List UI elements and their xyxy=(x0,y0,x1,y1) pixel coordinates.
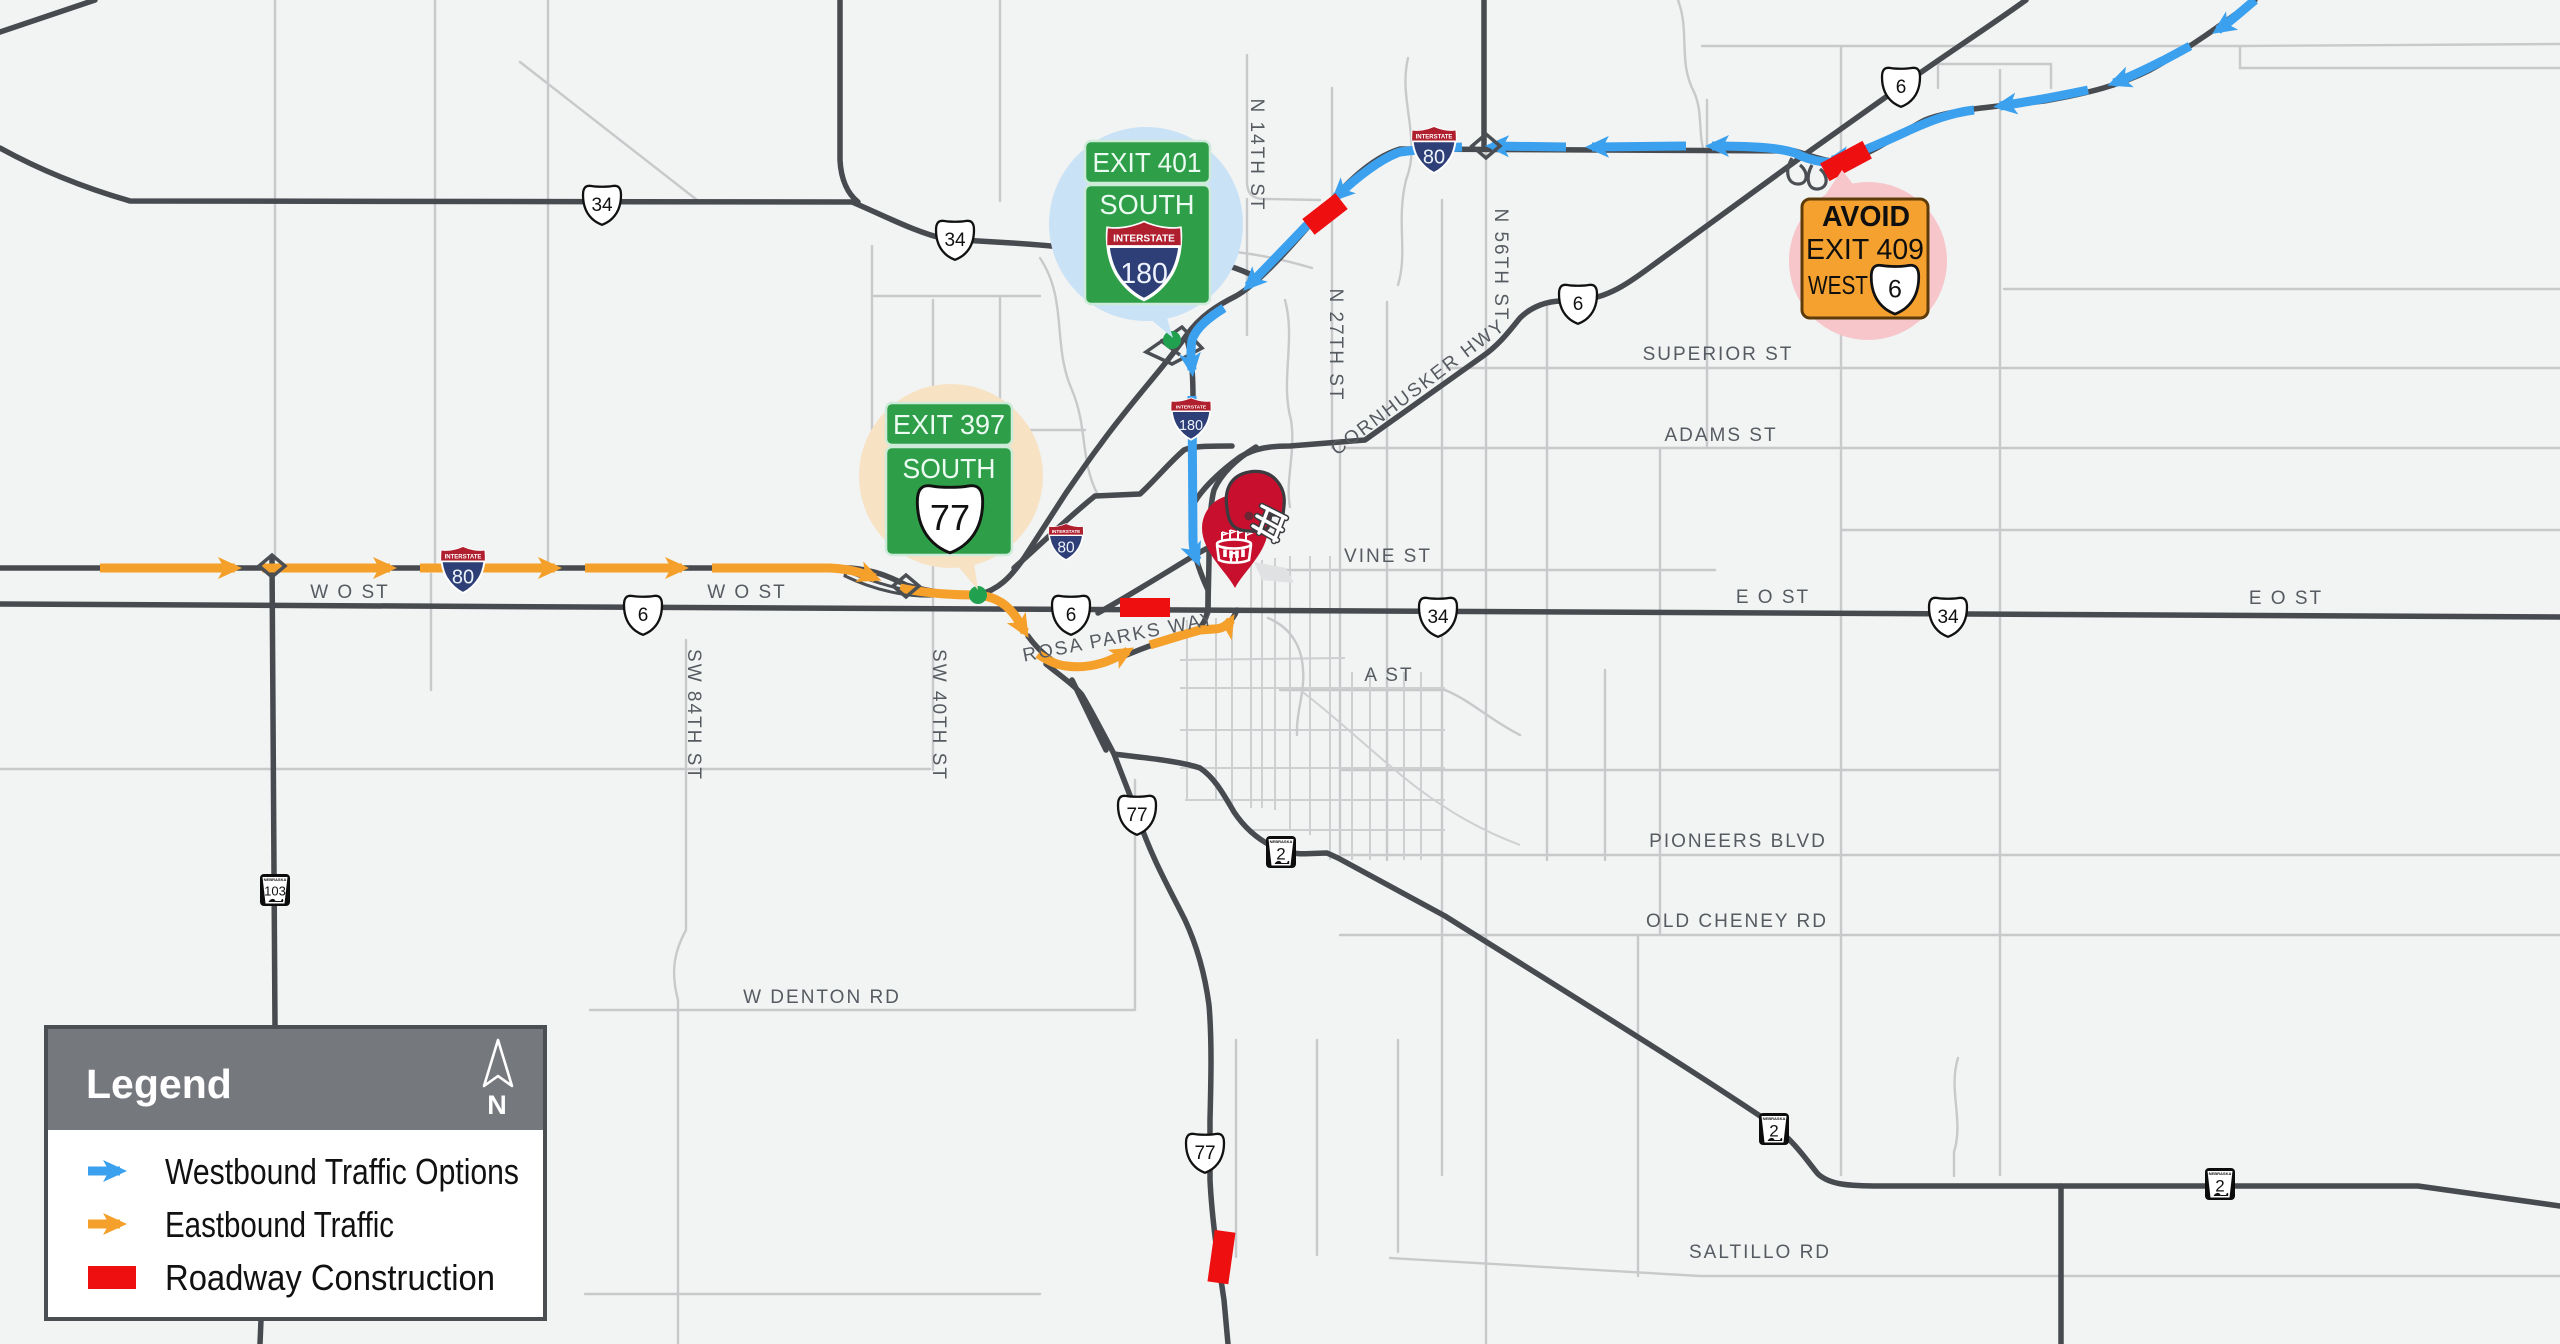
svg-text:SOUTH: SOUTH xyxy=(1100,189,1195,220)
svg-text:77: 77 xyxy=(1126,805,1147,826)
svg-text:SUPERIOR ST: SUPERIOR ST xyxy=(1643,344,1794,365)
svg-text:W O ST: W O ST xyxy=(310,582,390,603)
svg-text:VINE ST: VINE ST xyxy=(1344,546,1432,567)
svg-text:Westbound Traffic Options: Westbound Traffic Options xyxy=(165,1151,519,1192)
svg-text:INTERSTATE: INTERSTATE xyxy=(1176,405,1207,411)
svg-text:180: 180 xyxy=(1179,418,1203,434)
svg-text:6: 6 xyxy=(638,605,649,626)
svg-text:AVOID: AVOID xyxy=(1822,201,1910,233)
svg-text:E O ST: E O ST xyxy=(1736,587,1810,608)
svg-text:34: 34 xyxy=(944,230,966,251)
svg-text:80: 80 xyxy=(452,567,474,589)
svg-text:2: 2 xyxy=(1276,845,1285,864)
svg-text:Eastbound Traffic: Eastbound Traffic xyxy=(165,1204,394,1245)
svg-text:34: 34 xyxy=(1937,607,1959,628)
svg-text:NEBRASKA: NEBRASKA xyxy=(264,877,287,882)
svg-text:6: 6 xyxy=(1888,275,1902,303)
svg-text:EXIT 401: EXIT 401 xyxy=(1093,147,1202,178)
svg-text:N 56TH ST: N 56TH ST xyxy=(1490,208,1511,321)
svg-text:NEBRASKA: NEBRASKA xyxy=(1763,1116,1786,1121)
svg-text:80: 80 xyxy=(1423,147,1445,169)
svg-text:INTERSTATE: INTERSTATE xyxy=(1052,529,1081,534)
svg-text:103: 103 xyxy=(264,884,286,899)
svg-text:WEST: WEST xyxy=(1808,270,1868,300)
svg-text:Roadway Construction: Roadway Construction xyxy=(165,1257,495,1298)
svg-text:EXIT 397: EXIT 397 xyxy=(893,409,1005,440)
svg-text:Legend: Legend xyxy=(86,1061,232,1107)
svg-text:SALTILLO RD: SALTILLO RD xyxy=(1689,1242,1831,1263)
svg-text:OLD CHENEY RD: OLD CHENEY RD xyxy=(1646,911,1828,932)
svg-text:180: 180 xyxy=(1120,258,1168,290)
svg-text:N 14TH ST: N 14TH ST xyxy=(1246,98,1267,211)
svg-text:SOUTH: SOUTH xyxy=(903,453,996,484)
svg-text:INTERSTATE: INTERSTATE xyxy=(1113,234,1175,245)
svg-text:80: 80 xyxy=(1057,540,1075,557)
svg-text:2: 2 xyxy=(1769,1122,1778,1141)
svg-text:SW 40TH ST: SW 40TH ST xyxy=(928,649,949,781)
svg-text:N 27TH ST: N 27TH ST xyxy=(1325,288,1346,401)
svg-text:W DENTON RD: W DENTON RD xyxy=(743,987,901,1008)
svg-text:PIONEERS BLVD: PIONEERS BLVD xyxy=(1649,831,1827,852)
svg-text:77: 77 xyxy=(1194,1143,1215,1164)
svg-text:ADAMS ST: ADAMS ST xyxy=(1664,425,1777,446)
svg-text:34: 34 xyxy=(1427,607,1449,628)
svg-text:6: 6 xyxy=(1573,294,1584,315)
svg-text:N: N xyxy=(487,1090,507,1120)
svg-text:34: 34 xyxy=(591,195,613,216)
svg-text:W O ST: W O ST xyxy=(707,582,787,603)
svg-text:6: 6 xyxy=(1066,605,1077,626)
svg-text:77: 77 xyxy=(930,497,970,538)
svg-text:NEBRASKA: NEBRASKA xyxy=(2209,1171,2232,1176)
svg-text:INTERSTATE: INTERSTATE xyxy=(1416,134,1453,140)
svg-text:2: 2 xyxy=(2215,1177,2224,1196)
svg-text:EXIT 409: EXIT 409 xyxy=(1806,234,1924,266)
svg-text:A ST: A ST xyxy=(1364,665,1413,686)
svg-text:E O ST: E O ST xyxy=(2249,588,2323,609)
svg-text:SW 84TH ST: SW 84TH ST xyxy=(683,649,704,781)
svg-text:INTERSTATE: INTERSTATE xyxy=(445,554,482,560)
svg-text:NEBRASKA: NEBRASKA xyxy=(1270,839,1293,844)
svg-text:6: 6 xyxy=(1896,77,1907,98)
